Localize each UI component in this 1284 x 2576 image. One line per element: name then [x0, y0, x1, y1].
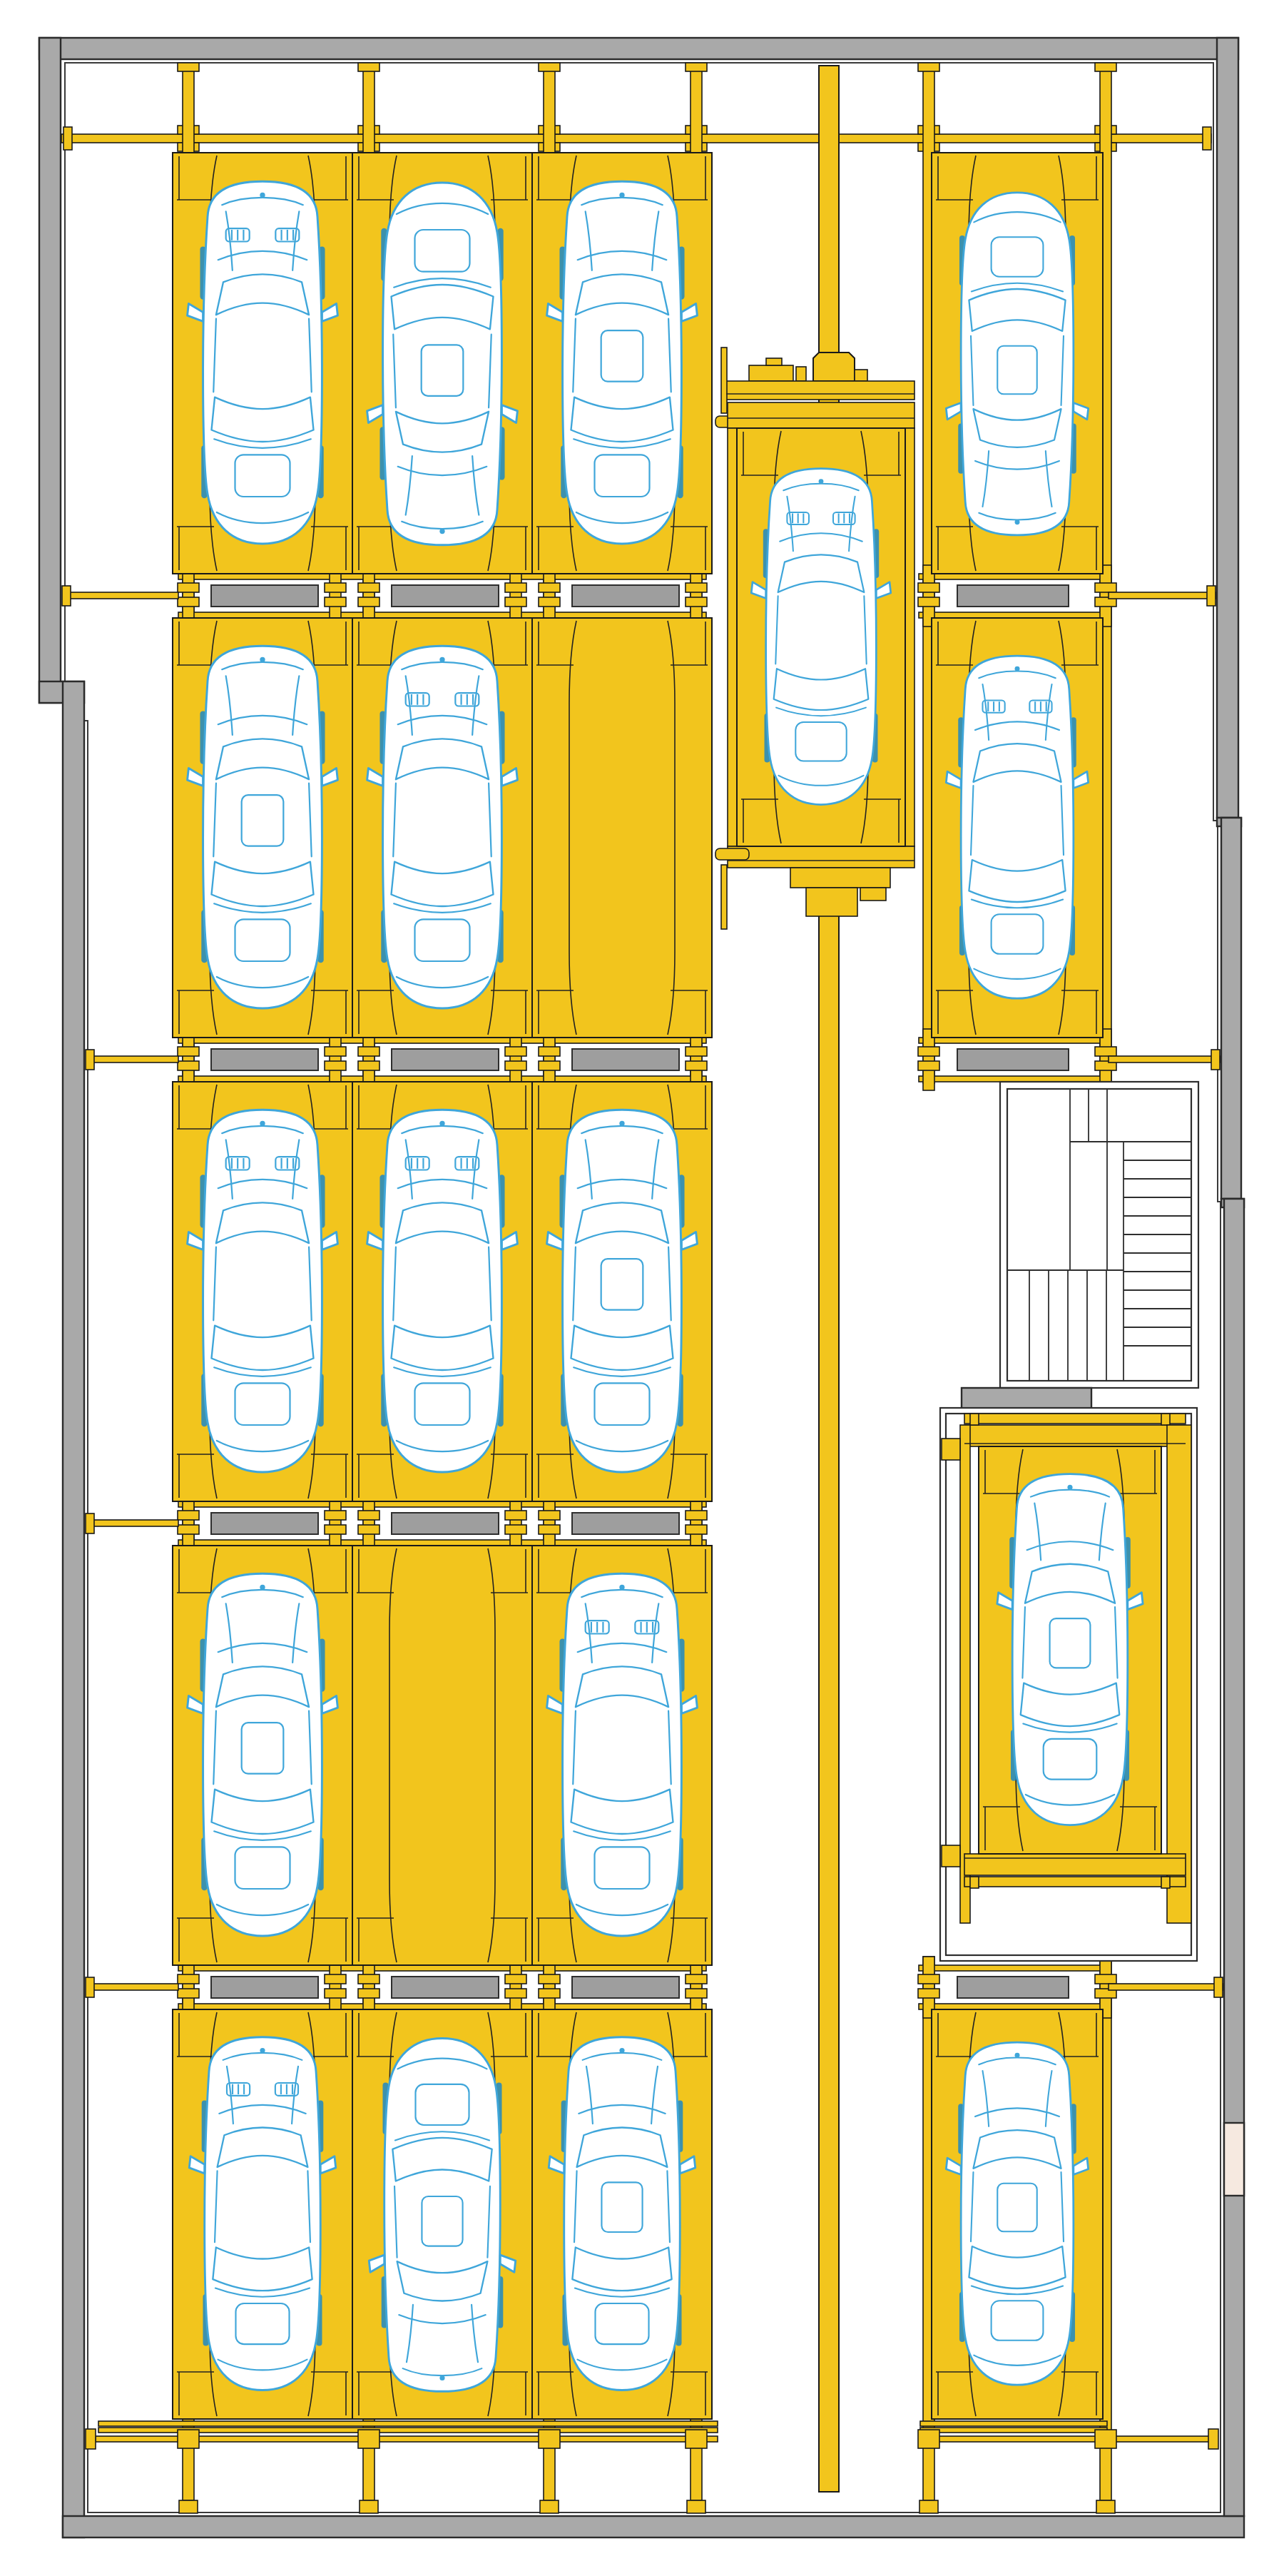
band-clamp	[918, 1047, 939, 1056]
band-bar-top	[919, 1038, 1109, 1043]
car-glyph-b	[188, 181, 338, 544]
bay-right-r1	[932, 153, 1103, 574]
frame-tab-c	[970, 1877, 979, 1888]
wall-right-upper	[1217, 38, 1238, 818]
post-foot	[919, 2500, 938, 2513]
bottom-clamp	[918, 2430, 939, 2448]
cross-member	[211, 1513, 318, 1534]
wall-left-lower	[63, 681, 84, 2537]
drive-step-b	[855, 370, 867, 381]
cross-member	[957, 1977, 1069, 1998]
post-top-cap	[686, 63, 707, 71]
band-bar-top	[178, 1501, 706, 1507]
post-top-cap	[918, 63, 939, 71]
cross-member	[392, 1049, 499, 1070]
band-clamp	[918, 597, 939, 607]
band-bar-bottom	[178, 1076, 706, 1082]
band-clamp	[539, 597, 560, 607]
tie-rod-wall-cap	[1211, 1050, 1220, 1070]
band-clamp	[358, 1047, 379, 1056]
band-clamp	[325, 597, 346, 607]
cross-member	[572, 1977, 679, 1998]
beam-top	[726, 381, 914, 400]
band-clamp	[686, 1989, 707, 1998]
post-top-cap	[1095, 63, 1116, 71]
bay-r5c1	[173, 2009, 352, 2419]
band-clamp	[539, 1061, 560, 1070]
band-clamp	[1095, 583, 1116, 592]
frame-column-right	[1167, 1425, 1191, 1923]
band-clamp	[325, 1525, 346, 1534]
post-foot	[687, 2500, 705, 2513]
post-top-cap	[539, 63, 560, 71]
bay-r1c3	[532, 153, 712, 574]
bay-r1c1	[173, 153, 352, 574]
bay-r4c3	[532, 1546, 712, 1965]
car-glyph-a	[997, 1474, 1143, 1825]
car-glyph-a	[188, 646, 338, 1008]
parking-system-plan-svg	[0, 0, 1284, 2576]
bay-r5c3-car	[549, 2037, 695, 2390]
band-clamp	[686, 1047, 707, 1056]
bay-r5c2	[352, 2009, 532, 2419]
band-clamp	[686, 583, 707, 592]
wall-left-upper	[39, 38, 61, 703]
band-clamp	[178, 1525, 199, 1534]
lower-step-a	[790, 868, 890, 888]
band-clamp	[918, 1989, 939, 1998]
bay-r3c3-car	[547, 1110, 698, 1472]
cross-member	[957, 585, 1069, 607]
wall-door-opening	[1224, 2123, 1244, 2196]
bay-r4c1	[173, 1546, 352, 1965]
band-clamp	[505, 1989, 526, 1998]
frame-tab-b	[1161, 1414, 1170, 1425]
bay-r1c2-car	[367, 183, 518, 545]
bottom-clamp	[358, 2430, 379, 2448]
band-bar-top	[919, 1965, 1109, 1971]
band-clamp	[358, 1061, 379, 1070]
tie-rod-left	[93, 1056, 178, 1063]
band-clamp	[918, 583, 939, 592]
tie-rod-wall-cap	[62, 586, 71, 606]
frame-bay-car	[997, 1474, 1143, 1825]
platform-side-left	[728, 428, 737, 846]
bottom-clamp	[539, 2430, 560, 2448]
cross-member	[572, 585, 679, 607]
bay-r3c2	[352, 1082, 532, 1501]
bay-r3c2-car	[367, 1110, 518, 1472]
bottom-bar	[920, 2421, 1107, 2426]
post-foot	[360, 2500, 378, 2513]
bay-r3c1	[173, 1082, 352, 1501]
band-clamp	[505, 1047, 526, 1056]
bay-bottom-right-car	[946, 2042, 1088, 2385]
car-glyph-b	[188, 1110, 338, 1472]
tie-rod-wall-cap	[1207, 586, 1216, 606]
tie-rod-wall-cap	[86, 1977, 94, 1997]
band-clamp	[505, 597, 526, 607]
band-clamp	[325, 1511, 346, 1520]
band-clamp	[358, 597, 379, 607]
bay-r2c2	[352, 618, 532, 1038]
band-bar-bottom	[919, 2004, 1109, 2009]
band-clamp	[539, 1047, 560, 1056]
frame-thinbar-bottom	[964, 1877, 1186, 1887]
bay-r2c1	[173, 618, 352, 1038]
car-glyph-b	[367, 1110, 518, 1472]
bay-right-r1-car	[946, 193, 1088, 535]
bay-right-r2	[932, 618, 1103, 1038]
band-clamp	[686, 1511, 707, 1520]
rail-head-block	[813, 353, 855, 381]
tie-rod-right	[1109, 1056, 1220, 1063]
post-foot	[179, 2500, 198, 2513]
band-clamp	[686, 1061, 707, 1070]
band-clamp	[325, 1047, 346, 1056]
transfer-shuttle	[715, 348, 914, 929]
band-clamp	[178, 1061, 199, 1070]
band-clamp	[178, 583, 199, 592]
band-bar-bottom	[919, 612, 1109, 618]
car-glyph-a	[369, 2039, 515, 2392]
bay-bottom-right	[932, 2009, 1103, 2419]
car-glyph-b	[946, 656, 1088, 998]
bottom-rod-cap	[1208, 2429, 1218, 2449]
cross-member	[392, 1977, 499, 1998]
band-bar-top	[178, 574, 706, 579]
band-clamp	[539, 1989, 560, 1998]
guide-plate-top	[721, 348, 727, 413]
cross-member	[572, 1513, 679, 1534]
bay-r1c2	[352, 153, 532, 574]
bottom-clamp	[178, 2430, 199, 2448]
band-bar-top	[178, 1038, 706, 1043]
frame-thinbar-top	[964, 1414, 1186, 1424]
bay-r4c2	[352, 1546, 532, 1965]
band-clamp	[918, 1974, 939, 1984]
bay-r4c3-car	[547, 1573, 698, 1936]
bay-right-r2-car	[946, 656, 1088, 998]
car-glyph-a	[549, 2037, 695, 2390]
band-clamp	[539, 1974, 560, 1984]
top-rail-bar	[61, 134, 1211, 143]
cross-member	[572, 1049, 679, 1070]
band-clamp	[505, 1974, 526, 1984]
frame-crossbar-bottom	[964, 1854, 1186, 1875]
band-clamp	[358, 1989, 379, 1998]
car-glyph-b	[751, 469, 891, 805]
bay-r3c3	[532, 1082, 712, 1501]
lower-step-c	[860, 888, 886, 901]
platform-side-right	[905, 428, 914, 846]
band-clamp	[539, 583, 560, 592]
post-top-cap	[358, 63, 379, 71]
bay-r1c1-car	[188, 181, 338, 544]
band-clamp	[1095, 1974, 1116, 1984]
band-clamp	[178, 1047, 199, 1056]
tie-rod-left	[93, 1984, 178, 1990]
latch-bottom	[715, 848, 749, 860]
band-clamp	[505, 1511, 526, 1520]
tie-rod-right	[1109, 1984, 1223, 1990]
drive-motor-cap	[766, 358, 782, 365]
car-glyph-a	[367, 183, 518, 545]
car-glyph-a	[188, 1573, 338, 1936]
wall-right-mid	[1221, 818, 1241, 1199]
car-glyph-b	[547, 1573, 698, 1936]
bay-r2c3	[532, 618, 712, 1038]
bay-r5c2-car	[369, 2039, 515, 2392]
tie-rod-left	[93, 1520, 178, 1526]
bay-r5c1-car	[189, 2037, 335, 2390]
bay-r2c1-car	[188, 646, 338, 1008]
automated-parking-floor-plan	[0, 0, 1284, 2576]
band-bar-bottom	[919, 1076, 1109, 1082]
cross-member	[392, 1513, 499, 1534]
cross-member	[211, 1977, 318, 1998]
shuttle-car	[751, 469, 891, 805]
bay-r2c2-car	[367, 646, 518, 1008]
band-clamp	[686, 1525, 707, 1534]
tie-rod-wall-cap	[86, 1050, 94, 1070]
lower-step-b	[806, 888, 857, 916]
band-bar-bottom	[178, 2004, 706, 2009]
band-clamp	[178, 1511, 199, 1520]
frame-tab-a	[970, 1414, 979, 1425]
band-clamp	[686, 597, 707, 607]
car-glyph-a	[547, 1110, 698, 1472]
band-clamp	[505, 1061, 526, 1070]
tie-rod-wall-cap	[1214, 1977, 1223, 1997]
band-clamp	[325, 1061, 346, 1070]
car-glyph-b	[189, 2037, 335, 2390]
frame-strip-left	[960, 1425, 970, 1923]
guide-plate-bottom	[721, 865, 727, 929]
band-clamp	[358, 1525, 379, 1534]
band-clamp	[178, 597, 199, 607]
band-clamp	[1095, 1047, 1116, 1056]
band-clamp	[505, 1525, 526, 1534]
band-clamp	[178, 1989, 199, 1998]
bay-r4c1-car	[188, 1573, 338, 1936]
band-clamp	[358, 1974, 379, 1984]
band-clamp	[325, 583, 346, 592]
band-clamp	[325, 1989, 346, 1998]
car-glyph-a	[547, 181, 698, 544]
tie-rod-left	[70, 592, 178, 599]
band-bar-bottom	[178, 612, 706, 618]
band-clamp	[358, 583, 379, 592]
cross-member	[211, 1049, 318, 1070]
band-clamp	[686, 1974, 707, 1984]
band-clamp	[178, 1974, 199, 1984]
frame-outer-tab-bottom	[942, 1845, 960, 1867]
platform-footer	[728, 846, 914, 868]
cross-member	[211, 585, 318, 607]
car-glyph-a	[946, 193, 1088, 535]
band-clamp	[539, 1511, 560, 1520]
bay-r1c3-car	[547, 181, 698, 544]
car-glyph-a	[946, 2042, 1088, 2385]
post-top-cap	[178, 63, 199, 71]
top-rail-cap-right	[1203, 127, 1211, 150]
frame-outer-tab-top	[942, 1439, 960, 1460]
tie-rod-wall-cap	[86, 1513, 94, 1533]
wall-bottom	[63, 2516, 1244, 2537]
post-foot	[540, 2500, 559, 2513]
bottom-bar	[98, 2421, 718, 2426]
band-clamp	[918, 1061, 939, 1070]
wall-top	[39, 38, 1238, 59]
platform-header	[728, 402, 914, 428]
bottom-rod-cap	[86, 2429, 96, 2449]
band-clamp	[325, 1974, 346, 1984]
bottom-clamp	[686, 2430, 707, 2448]
bottom-tie-rod	[924, 2436, 1217, 2442]
drive-step-a	[796, 367, 806, 381]
tie-rod-right	[1109, 592, 1216, 599]
frame-tab-d	[1161, 1877, 1170, 1888]
bay-r4c2-pallet	[352, 1546, 532, 1965]
post-foot	[1096, 2500, 1115, 2513]
cross-member	[957, 1049, 1069, 1070]
top-rail-cap-left	[63, 127, 72, 150]
bay-r3c1-car	[188, 1110, 338, 1472]
car-glyph-b	[367, 646, 518, 1008]
drive-motor	[749, 365, 793, 381]
band-clamp	[505, 583, 526, 592]
stair-landing-slab	[962, 1388, 1091, 1409]
bottom-bar	[920, 2428, 1107, 2433]
wall-right-lower	[1224, 1199, 1244, 2516]
cross-member	[392, 585, 499, 607]
bay-r2c3-pallet	[532, 618, 712, 1038]
bay-r5c3	[532, 2009, 712, 2419]
band-clamp	[358, 1511, 379, 1520]
single-bay-frame	[940, 1408, 1197, 1961]
bottom-clamp	[1095, 2430, 1116, 2448]
band-bar-top	[178, 1965, 706, 1971]
band-clamp	[539, 1525, 560, 1534]
band-bar-bottom	[178, 1540, 706, 1546]
band-bar-top	[919, 574, 1109, 579]
